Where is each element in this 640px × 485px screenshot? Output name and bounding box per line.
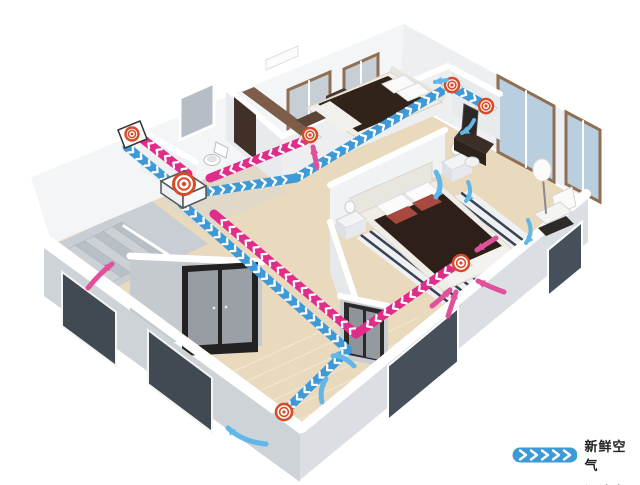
legend-label-fresh-air: 新鲜空气 — [584, 436, 640, 474]
fresh-air-duct-swatch — [512, 447, 577, 463]
lamp-icon — [345, 201, 355, 213]
fresh-air-flow-arrow — [435, 80, 447, 82]
legend-item-fresh-air: 新鲜空气 — [512, 436, 640, 474]
floor-lamp-icon — [533, 159, 551, 181]
legend-label-exhaust-air: 污浊空气 — [584, 481, 640, 485]
floorplan-page: 新鲜空气 污浊空气 — [0, 0, 640, 485]
legend-item-exhaust-air: 污浊空气 — [512, 481, 640, 485]
ventilation-floorplan-illustration — [0, 0, 640, 485]
legend: 新鲜空气 污浊空气 — [512, 436, 640, 485]
